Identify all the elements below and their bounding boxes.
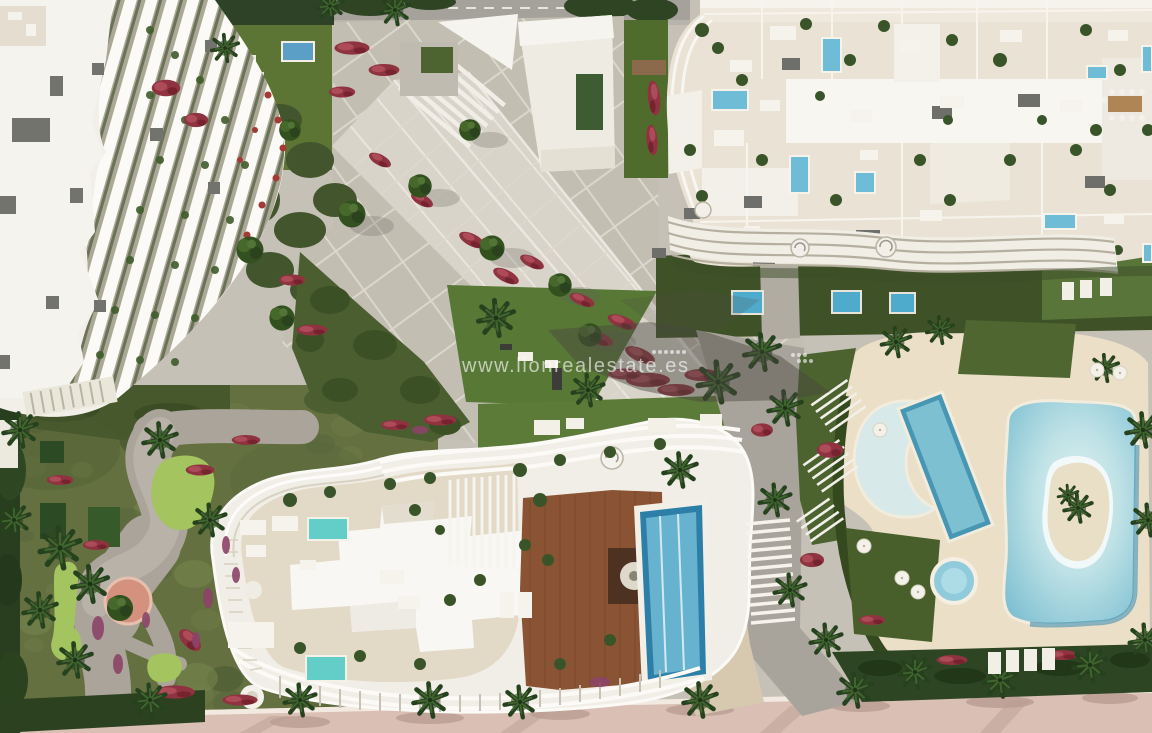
svg-text:www.lionrealestate.es: www.lionrealestate.es xyxy=(461,355,688,377)
